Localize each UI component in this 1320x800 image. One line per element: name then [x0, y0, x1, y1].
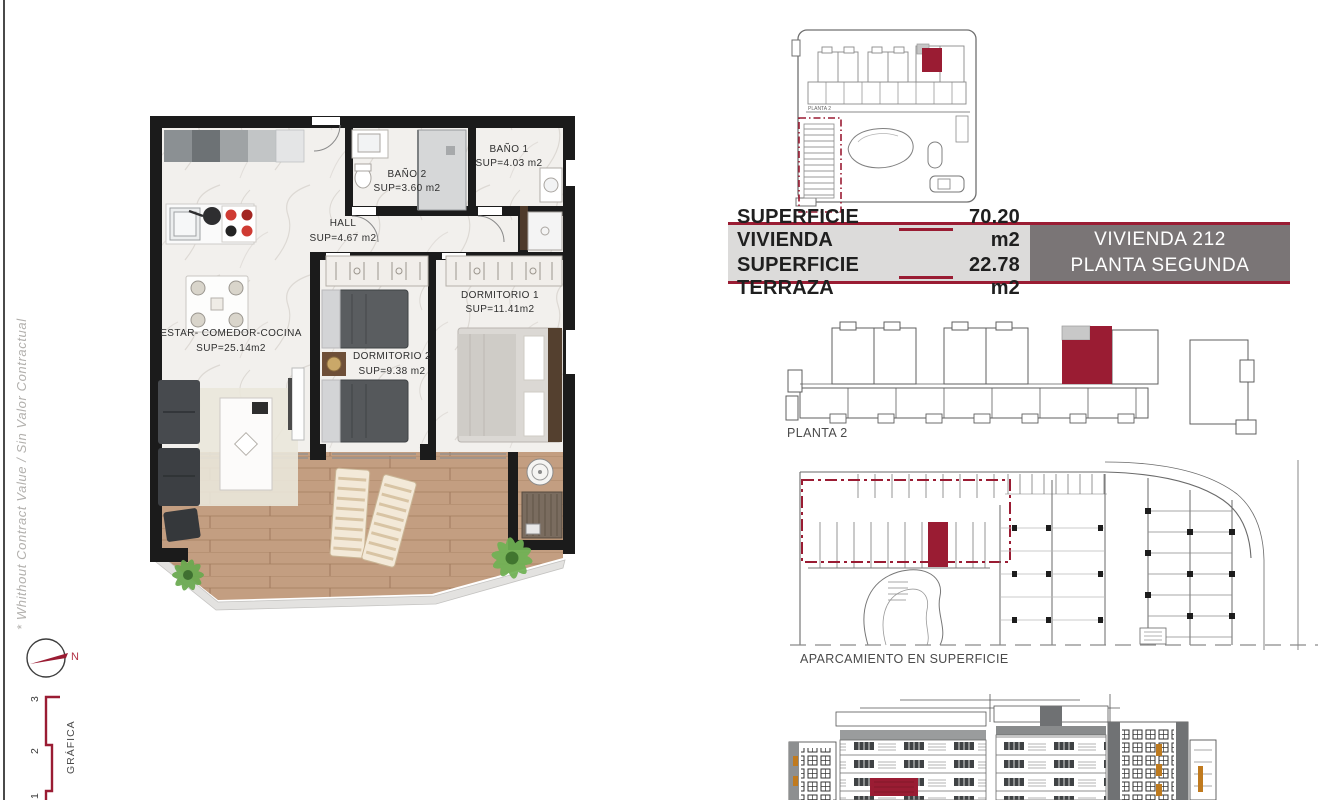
surface-row-vivienda: SUPERFICIE VIVIENDA 70.20 m2 [737, 206, 1020, 252]
site-parking-strip [804, 124, 834, 198]
unit-number: VIVIENDA 212 [1094, 227, 1226, 253]
spa-pool [928, 142, 942, 168]
scale-line [46, 697, 60, 800]
site-planta-label: PLANTA 2 [808, 106, 831, 112]
parking-highlight-zone [802, 480, 1010, 562]
parking-grid-a [1000, 474, 1105, 645]
dash-line [899, 228, 953, 231]
floor-plan: BAÑO 1 SUP=4.03 m2 BAÑO 2 SUP=3.60 m2 HA… [145, 108, 581, 616]
scale-caption: GRÁFICA [64, 720, 77, 774]
surface-rows: SUPERFICIE VIVIENDA 70.20 m2 SUPERFICIE … [728, 225, 1030, 281]
room-label-bano1: BAÑO 1 [489, 142, 528, 155]
elevation-rooflines [836, 694, 1120, 726]
dash-line [899, 276, 953, 279]
shower1 [528, 212, 562, 250]
elevation-right-wing [1190, 740, 1216, 800]
surface-value: 70.20 m2 [953, 206, 1020, 252]
elevation-drawing [786, 688, 1320, 800]
parking-highlight-spot [928, 522, 948, 567]
room-sup-bano1: SUP=4.03 m2 [476, 158, 543, 169]
parking-diagram: APARCAMIENTO EN SUPERFICIE [786, 458, 1320, 672]
parking-grid-b [1140, 478, 1235, 645]
wardrobe1 [446, 256, 562, 286]
pan [203, 207, 221, 225]
room-sup-hall: SUP=4.67 m2 [310, 233, 377, 244]
room-label-dorm2: DORMITORIO 2 [353, 351, 431, 362]
room-sup-estar: SUP=25.14m2 [196, 343, 266, 354]
room-label-dorm1: DORMITORIO 1 [461, 290, 539, 301]
room-sup-dorm1: SUP=11.41m2 [466, 304, 535, 315]
surface-summary-panel: SUPERFICIE VIVIENDA 70.20 m2 SUPERFICIE … [728, 222, 1290, 284]
compass: N [18, 630, 90, 686]
elevation-left-tower [789, 742, 836, 800]
site-diagram: PLANTA 2 [782, 14, 996, 216]
unit-badge: VIVIENDA 212 PLANTA SEGUNDA [1030, 225, 1290, 281]
unit-floor: PLANTA SEGUNDA [1070, 253, 1249, 279]
planta2-label: PLANTA 2 [787, 426, 848, 440]
planta2-band [800, 388, 1148, 418]
sheet-left-rule [3, 0, 5, 800]
scale-tick-2: 2 [29, 748, 41, 754]
room-label-hall: HALL [330, 218, 357, 229]
surface-value: 22.78 m2 [953, 254, 1020, 300]
parking-blob [864, 570, 943, 645]
parking-comb-top [858, 474, 1107, 498]
tv-unit [292, 368, 304, 440]
room-sup-bano2: SUP=3.60 m2 [374, 183, 441, 194]
graphic-scale: 3 2 1 GRÁFICA [16, 686, 90, 800]
room-label-bano2: BAÑO 2 [387, 167, 426, 180]
dining-table [186, 276, 248, 332]
car-icon [930, 176, 964, 192]
elevation-block-a [840, 730, 986, 800]
wardrobe2 [326, 256, 428, 286]
surface-row-terraza: SUPERFICIE TERRAZA 22.78 m2 [737, 254, 1020, 300]
room-sup-dorm2: SUP=9.38 m2 [359, 366, 426, 377]
surface-label: SUPERFICIE TERRAZA [737, 254, 899, 300]
disclaimer-note: * Whithout Contract Value / Sin Valor Co… [14, 340, 34, 630]
compass-north-label: N [71, 651, 79, 663]
scale-tick-1: 1 [29, 793, 41, 799]
scale-tick-3: 3 [29, 696, 41, 702]
site-building-strip [808, 46, 966, 104]
surface-label: SUPERFICIE VIVIENDA [737, 206, 899, 252]
elevation-right-tower [1108, 722, 1188, 800]
room-label-estar: ESTAR- COMEDOR-COCINA [160, 328, 302, 339]
parking-label: APARCAMIENTO EN SUPERFICIE [800, 652, 1009, 666]
planta2-diagram: PLANTA 2 [785, 314, 1317, 450]
elevation-block-b [996, 726, 1106, 800]
bedroom1-furniture [446, 256, 562, 442]
site-highlight-unit [922, 48, 942, 72]
